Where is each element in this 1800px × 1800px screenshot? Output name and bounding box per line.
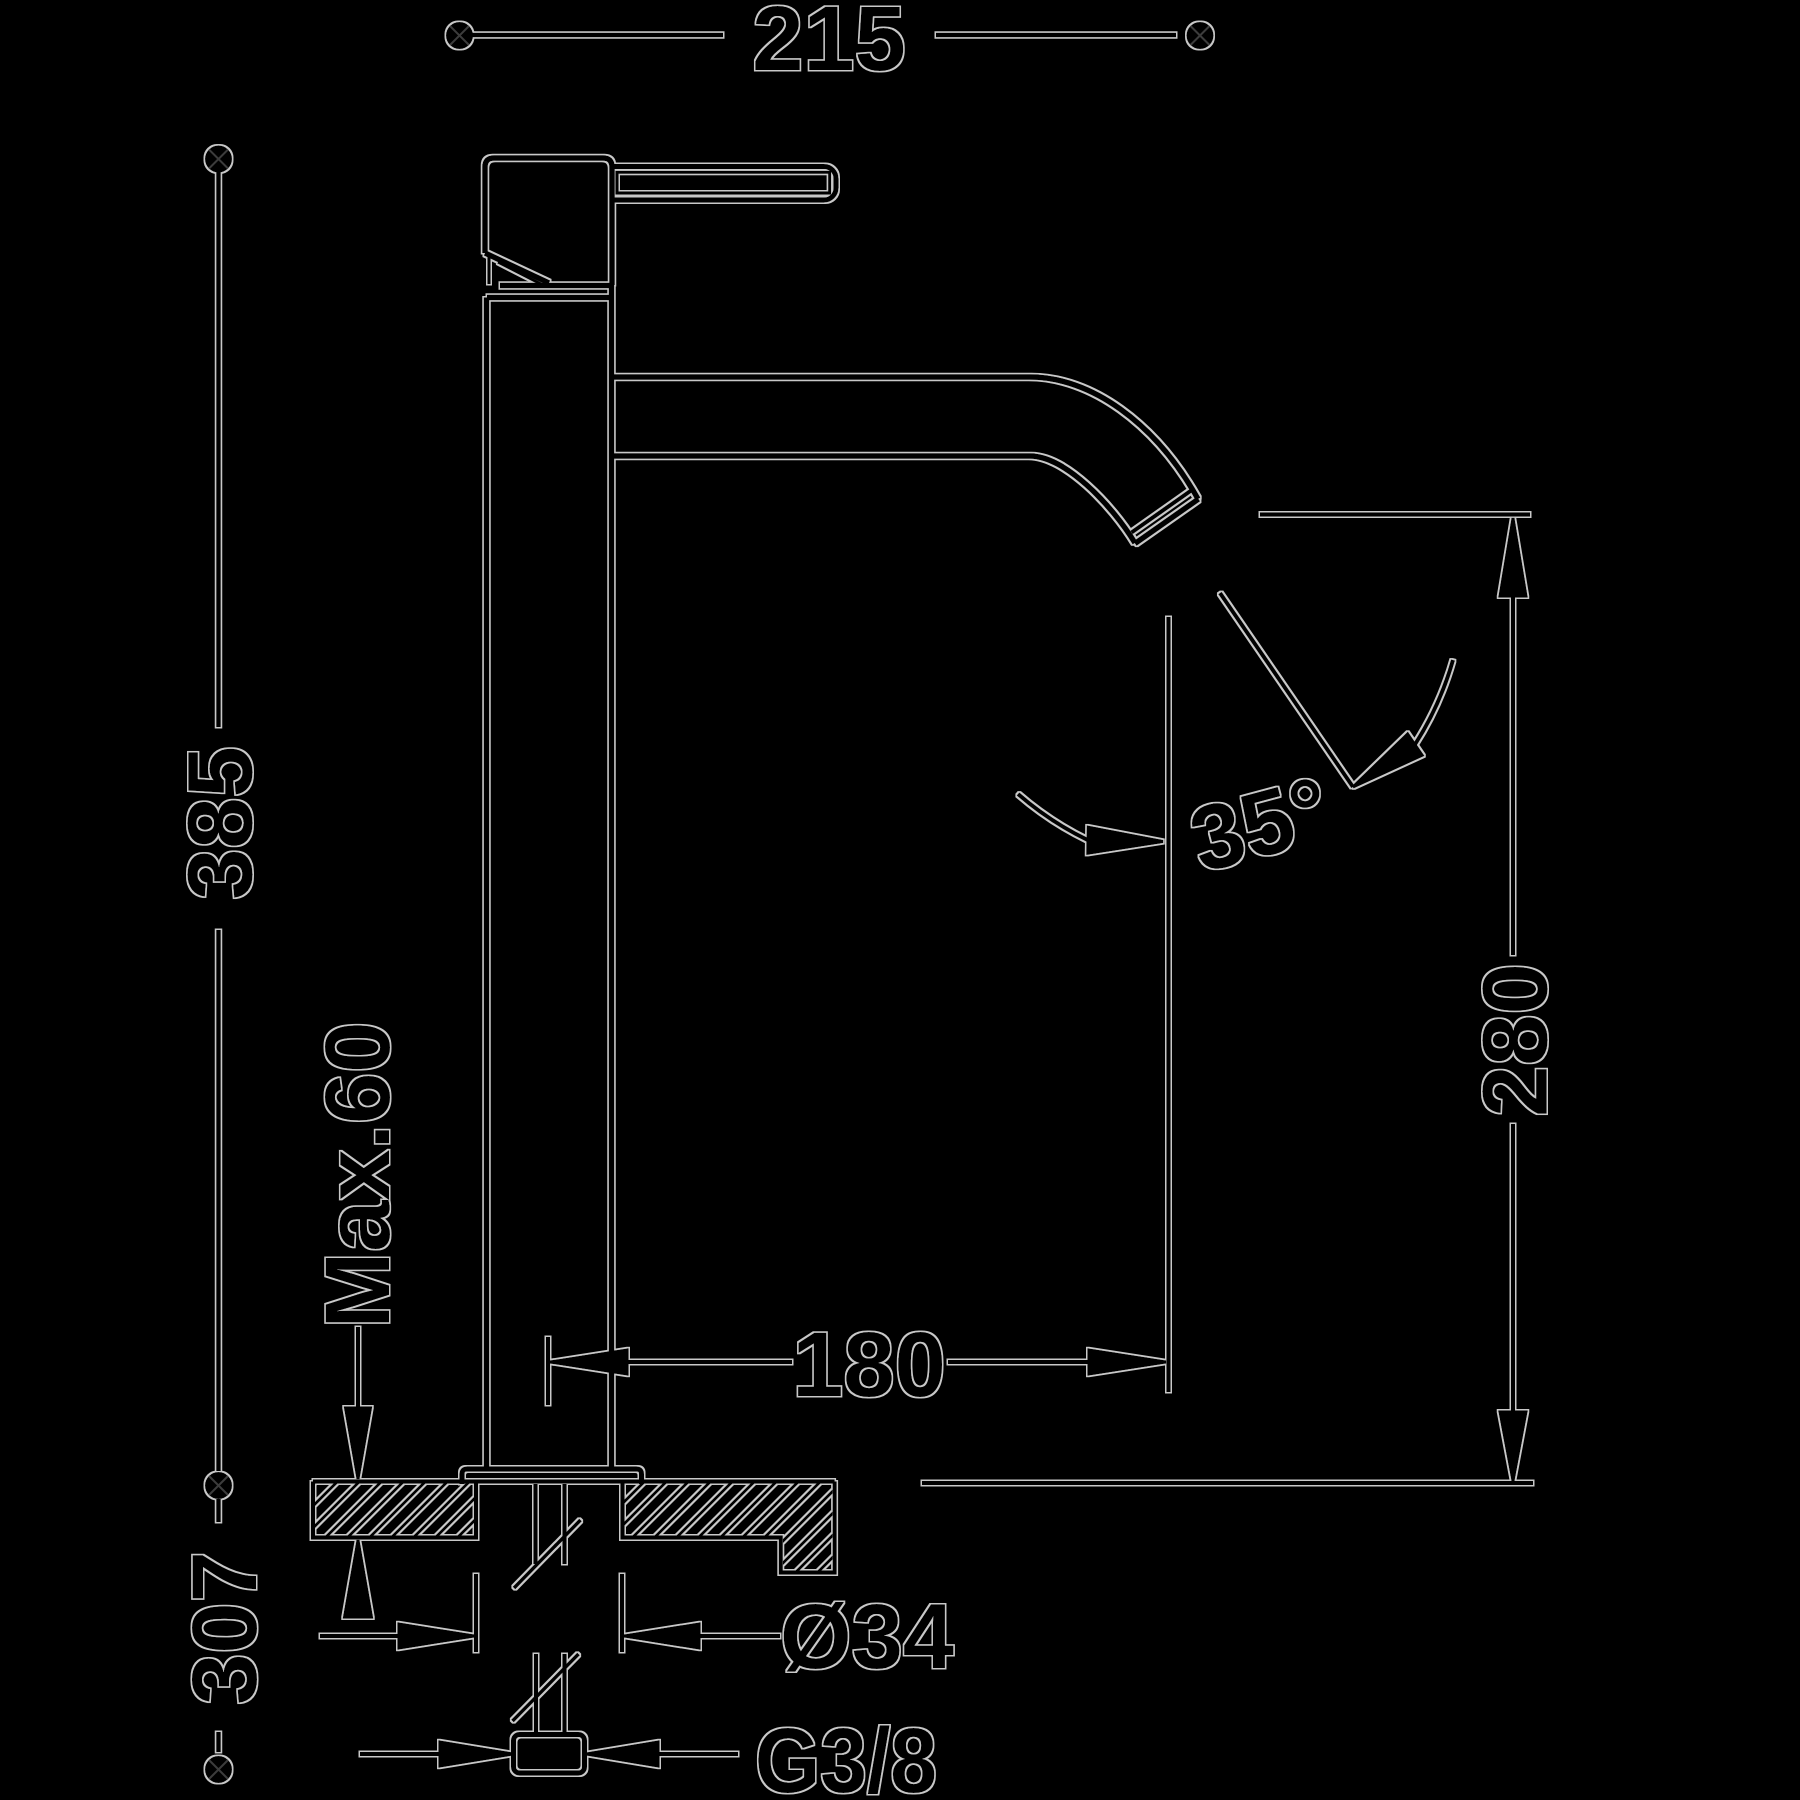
svg-text:Ø34: Ø34 (780, 1586, 954, 1688)
svg-text:Max.60: Max.60 (307, 1022, 409, 1329)
svg-text:307: 307 (174, 1551, 276, 1705)
svg-text:215: 215 (752, 0, 906, 90)
svg-text:280: 280 (1465, 963, 1567, 1117)
svg-text:G3/8: G3/8 (755, 1710, 937, 1800)
svg-text:180: 180 (792, 1314, 946, 1416)
svg-text:385: 385 (170, 746, 272, 900)
